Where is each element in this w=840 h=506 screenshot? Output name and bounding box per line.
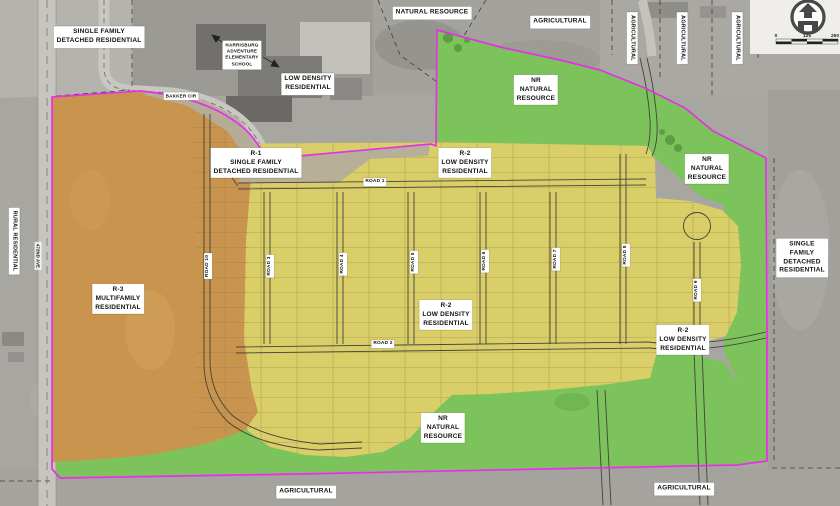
- map-legend-panel: 0 125 250: [750, 0, 840, 54]
- map-graphics: 0 125 250: [0, 0, 840, 506]
- zoning-map: 0 125 250 SINGLE FAMILY DETACHED RESIDEN…: [0, 0, 840, 506]
- svg-text:250: 250: [831, 33, 839, 39]
- svg-text:0: 0: [775, 33, 778, 39]
- svg-text:125: 125: [803, 33, 811, 39]
- house-arrow-icon: [792, 1, 824, 33]
- zone-r3-multifamily: [52, 92, 258, 462]
